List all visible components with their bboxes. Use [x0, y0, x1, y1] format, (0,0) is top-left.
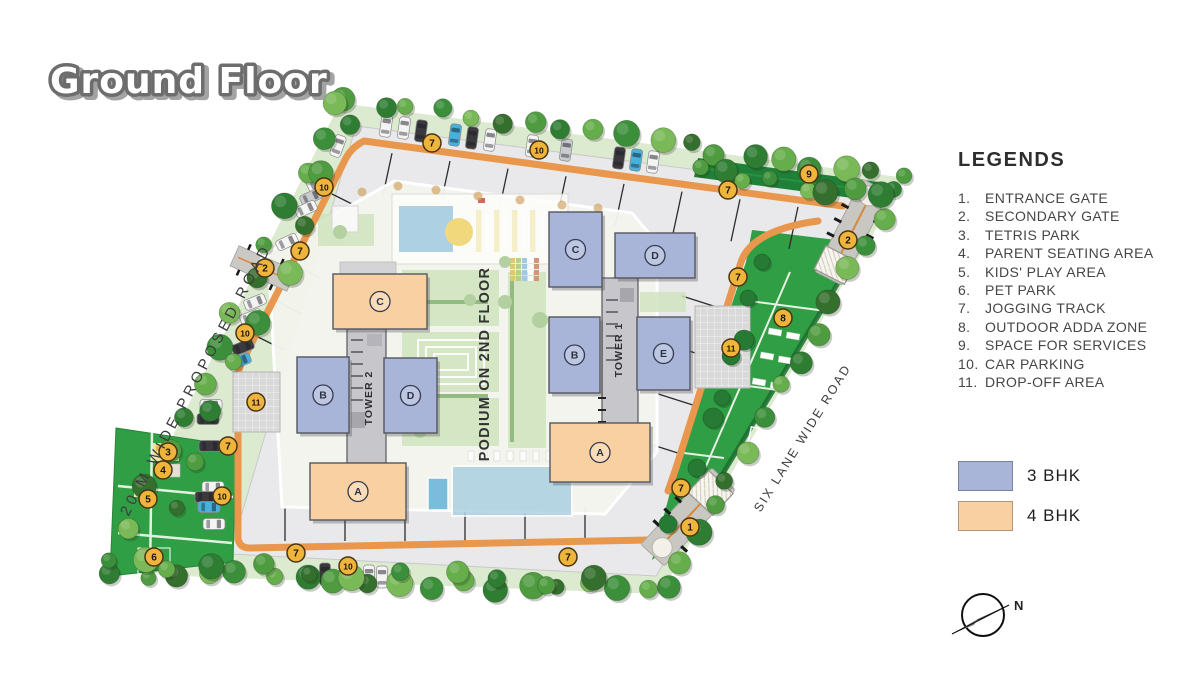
plan-marker-2: 2 — [839, 231, 857, 249]
legend-item-number: 5. — [958, 263, 985, 281]
plan-marker-7: 7 — [219, 437, 237, 455]
building-letter: D — [407, 390, 415, 402]
legend-item-number: 3. — [958, 226, 985, 244]
legend-item-number: 6. — [958, 281, 985, 299]
legend-item-label: CAR PARKING — [985, 355, 1085, 373]
svg-text:11: 11 — [727, 343, 736, 353]
building-d-3bhk: D — [615, 233, 698, 282]
building-letter: C — [376, 296, 384, 308]
plan-marker-7: 7 — [287, 544, 305, 562]
building-letter: A — [354, 486, 362, 498]
building-letter: B — [319, 390, 327, 402]
svg-text:10: 10 — [343, 561, 353, 571]
label-4bhk: 4 BHK — [1027, 506, 1081, 526]
legend-item-number: 8. — [958, 318, 985, 336]
legend-row-4bhk: 4 BHK — [958, 501, 1081, 531]
legend-item-number: 4. — [958, 244, 985, 262]
plan-marker-10: 10 — [530, 141, 548, 159]
legend-item-label: ENTRANCE GATE — [985, 189, 1108, 207]
plan-marker-9: 9 — [800, 165, 818, 183]
swatch-3bhk — [958, 461, 1013, 491]
building-a-4bhk: A — [550, 423, 653, 486]
building-b-3bhk: B — [549, 317, 603, 397]
svg-text:10: 10 — [217, 491, 227, 501]
legend-item: 10.CAR PARKING — [958, 355, 1196, 373]
legend-item-number: 10. — [958, 355, 985, 373]
building-letter: D — [651, 250, 659, 262]
svg-text:7: 7 — [225, 441, 231, 452]
svg-text:4: 4 — [160, 465, 166, 476]
legend-item-number: 1. — [958, 189, 985, 207]
plan-marker-7: 7 — [729, 268, 747, 286]
plan-marker-1: 1 — [681, 518, 699, 536]
plan-marker-8: 8 — [774, 309, 792, 327]
building-letter: B — [571, 350, 579, 362]
legend-item: 11.DROP-OFF AREA — [958, 373, 1196, 391]
plan-marker-7: 7 — [719, 181, 737, 199]
building-b-3bhk: B — [297, 357, 352, 437]
legend-item-label: SPACE FOR SERVICES — [985, 336, 1147, 354]
legends-panel: LEGENDS 1.ENTRANCE GATE2.SECONDARY GATE3… — [958, 149, 1196, 391]
legend-item-label: SECONDARY GATE — [985, 207, 1120, 225]
car-icon — [199, 441, 221, 452]
legend-item: 5.KIDS' PLAY AREA — [958, 263, 1196, 281]
unit-type-legend: 3 BHK 4 BHK — [958, 461, 1081, 541]
svg-text:2: 2 — [845, 235, 851, 246]
svg-text:7: 7 — [429, 138, 435, 149]
svg-text:7: 7 — [725, 185, 731, 196]
plan-marker-7: 7 — [423, 134, 441, 152]
legend-row-3bhk: 3 BHK — [958, 461, 1081, 491]
building-e-3bhk: E — [637, 317, 693, 394]
building-a-4bhk: A — [310, 463, 409, 524]
legend-item: 8.OUTDOOR ADDA ZONE — [958, 318, 1196, 336]
svg-text:9: 9 — [806, 169, 812, 180]
legend-item-label: OUTDOOR ADDA ZONE — [985, 318, 1147, 336]
legend-item: 3.TETRIS PARK — [958, 226, 1196, 244]
legend-item: 2.SECONDARY GATE — [958, 207, 1196, 225]
svg-text:7: 7 — [565, 552, 571, 563]
plan-marker-11: 11 — [722, 339, 740, 357]
legend-item: 1.ENTRANCE GATE — [958, 189, 1196, 207]
svg-text:7: 7 — [678, 483, 684, 494]
compass-needle — [952, 605, 1009, 634]
plan-marker-7: 7 — [559, 548, 577, 566]
legend-item: 9.SPACE FOR SERVICES — [958, 336, 1196, 354]
legend-item-number: 7. — [958, 299, 985, 317]
kids-podium-play-zone — [392, 194, 568, 264]
svg-text:10: 10 — [319, 182, 329, 192]
page-title: Ground Floor — [50, 61, 328, 102]
svg-text:7: 7 — [293, 548, 299, 559]
svg-text:10: 10 — [240, 328, 250, 338]
svg-text:7: 7 — [297, 246, 303, 257]
car-icon — [203, 519, 225, 530]
building-d-3bhk: D — [384, 358, 440, 437]
svg-text:6: 6 — [151, 552, 157, 563]
svg-text:1: 1 — [687, 522, 693, 533]
legend-item-label: PARENT SEATING AREA — [985, 244, 1154, 262]
legend-item-label: JOGGING TRACK — [985, 299, 1106, 317]
plan-marker-11: 11 — [247, 393, 265, 411]
compass-circle — [962, 594, 1004, 636]
legend-item-number: 11. — [958, 373, 985, 391]
svg-text:10: 10 — [534, 145, 544, 155]
plan-marker-10: 10 — [236, 324, 254, 342]
legend-item-label: KIDS' PLAY AREA — [985, 263, 1106, 281]
legend-item-number: 2. — [958, 207, 985, 225]
plan-marker-10: 10 — [213, 487, 231, 505]
legend-item-label: DROP-OFF AREA — [985, 373, 1105, 391]
legend-item: 4.PARENT SEATING AREA — [958, 244, 1196, 262]
label-3bhk: 3 BHK — [1027, 466, 1081, 486]
plan-marker-7: 7 — [672, 479, 690, 497]
plan-marker-6: 6 — [145, 548, 163, 566]
svg-text:8: 8 — [780, 313, 786, 324]
legends-heading: LEGENDS — [958, 149, 1196, 172]
podium-label: PODIUM ON 2ND FLOOR — [477, 267, 493, 461]
building-letter: C — [572, 244, 580, 256]
building-letter: A — [596, 447, 604, 459]
svg-text:5: 5 — [145, 494, 151, 505]
plan-marker-10: 10 — [339, 557, 357, 575]
building-letter: E — [660, 348, 667, 360]
legend-item-label: TETRIS PARK — [985, 226, 1080, 244]
legends-list: 1.ENTRANCE GATE2.SECONDARY GATE3.TETRIS … — [958, 189, 1196, 391]
plan-marker-7: 7 — [291, 242, 309, 260]
svg-text:7: 7 — [735, 272, 741, 283]
tower-2-label: TOWER 2 — [363, 371, 375, 426]
swatch-4bhk — [958, 501, 1013, 531]
legend-item: 6.PET PARK — [958, 281, 1196, 299]
site-plan-page: CBDACDBEA TOWER 2 TOWER 1 PODIUM ON 2ND … — [0, 0, 1200, 675]
plan-marker-10: 10 — [315, 178, 333, 196]
tower-1-label: TOWER 1 — [613, 323, 625, 378]
north-label: N — [1014, 598, 1023, 613]
legend-item-label: PET PARK — [985, 281, 1056, 299]
legend-item: 7.JOGGING TRACK — [958, 299, 1196, 317]
building-c-4bhk: C — [333, 274, 430, 333]
building-c-3bhk: C — [549, 212, 605, 291]
svg-text:11: 11 — [252, 397, 261, 407]
legend-item-number: 9. — [958, 336, 985, 354]
